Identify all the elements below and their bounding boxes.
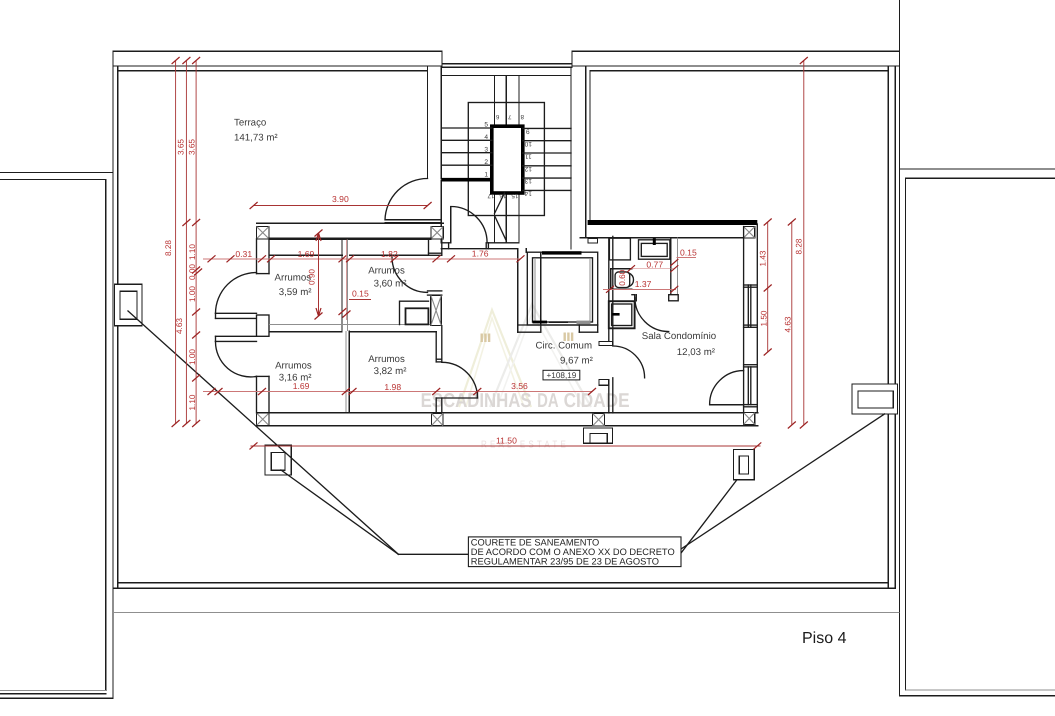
svg-text:1.00: 1.00 — [188, 349, 197, 365]
svg-text:3,82 m²: 3,82 m² — [374, 366, 408, 377]
svg-text:1.69: 1.69 — [298, 249, 315, 259]
svg-text:REGULAMENTAR 23/95 DE 23 DE AG: REGULAMENTAR 23/95 DE 23 DE AGOSTO — [471, 557, 659, 567]
svg-text:8.28: 8.28 — [164, 240, 173, 256]
svg-text:13: 13 — [524, 177, 532, 184]
svg-text:0.00: 0.00 — [188, 264, 197, 280]
svg-text:5: 5 — [484, 122, 488, 129]
svg-text:12,03 m²: 12,03 m² — [677, 347, 716, 358]
svg-text:1.50: 1.50 — [760, 310, 769, 326]
svg-text:11.50: 11.50 — [496, 436, 517, 446]
svg-text:Piso 4: Piso 4 — [802, 630, 847, 647]
svg-text:3.65: 3.65 — [188, 139, 197, 155]
svg-text:COURETE DE SANEAMENTO: COURETE DE SANEAMENTO — [471, 538, 599, 548]
svg-text:3: 3 — [484, 147, 488, 154]
svg-text:141,73 m²: 141,73 m² — [234, 133, 278, 144]
svg-text:1.10: 1.10 — [188, 244, 197, 260]
svg-text:0.15: 0.15 — [352, 289, 369, 299]
svg-text:8.28: 8.28 — [795, 238, 804, 254]
svg-text:14: 14 — [524, 190, 532, 197]
svg-text:11: 11 — [525, 152, 532, 159]
svg-text:12: 12 — [524, 165, 532, 172]
svg-text:Arrumos: Arrumos — [275, 273, 312, 284]
svg-text:1.69: 1.69 — [293, 381, 310, 391]
svg-text:3.56: 3.56 — [511, 381, 528, 391]
svg-text:1.37: 1.37 — [635, 279, 652, 289]
svg-text:0.31: 0.31 — [235, 249, 252, 259]
svg-text:1.98: 1.98 — [384, 382, 401, 392]
svg-text:9,67 m²: 9,67 m² — [560, 356, 594, 367]
svg-text:15: 15 — [511, 192, 518, 199]
svg-text:1.82: 1.82 — [381, 249, 398, 259]
svg-text:7: 7 — [508, 113, 512, 120]
svg-text:Sala Condomínio: Sala Condomínio — [642, 331, 716, 342]
svg-text:2: 2 — [484, 159, 488, 166]
svg-text:Terraço: Terraço — [234, 118, 266, 129]
svg-text:+108,19: +108,19 — [547, 371, 577, 380]
svg-text:1: 1 — [484, 171, 488, 178]
svg-text:Arrumos: Arrumos — [275, 361, 312, 372]
svg-text:DE ACORDO COM O ANEXO XX DO DE: DE ACORDO COM O ANEXO XX DO DECRETO — [471, 547, 675, 557]
svg-text:0.77: 0.77 — [646, 259, 663, 269]
svg-text:1.76: 1.76 — [472, 249, 489, 259]
svg-text:1.00: 1.00 — [188, 286, 197, 302]
svg-text:4: 4 — [484, 134, 488, 141]
svg-text:3.65: 3.65 — [177, 139, 186, 155]
svg-text:0.60: 0.60 — [618, 269, 627, 285]
svg-text:8: 8 — [520, 113, 524, 120]
svg-text:1.43: 1.43 — [759, 250, 768, 266]
svg-text:3.90: 3.90 — [332, 194, 349, 204]
svg-text:Arrumos: Arrumos — [368, 354, 405, 365]
svg-text:6: 6 — [495, 113, 499, 120]
svg-text:Circ. Comum: Circ. Comum — [536, 341, 593, 352]
svg-text:REAL ESTATE: REAL ESTATE — [481, 440, 569, 451]
svg-text:3,59 m²: 3,59 m² — [279, 287, 313, 298]
svg-text:10: 10 — [524, 140, 532, 147]
svg-text:9: 9 — [526, 128, 530, 135]
svg-text:4.63: 4.63 — [175, 318, 184, 334]
svg-text:0.15: 0.15 — [680, 248, 697, 258]
svg-text:CIDADE: CIDADE — [564, 390, 630, 412]
svg-text:3,60 m²: 3,60 m² — [374, 278, 408, 289]
svg-text:4.63: 4.63 — [784, 316, 793, 332]
svg-text:17: 17 — [487, 192, 494, 199]
svg-text:1.10: 1.10 — [188, 394, 197, 410]
svg-text:0.90: 0.90 — [308, 269, 317, 285]
svg-text:DA: DA — [537, 390, 559, 412]
svg-text:Arrumos: Arrumos — [368, 266, 405, 277]
